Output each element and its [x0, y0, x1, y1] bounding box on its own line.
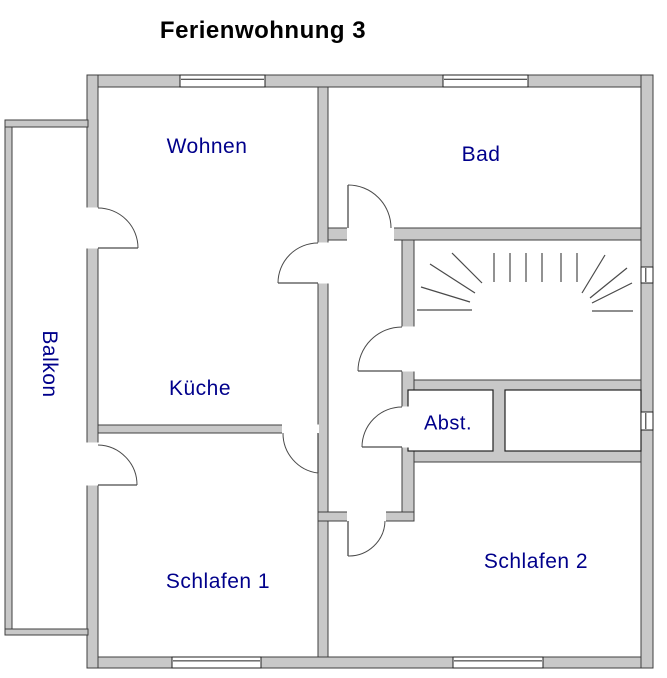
- page-title: Ferienwohnung 3: [160, 17, 366, 45]
- room-label-schlafen1: Schlafen 1: [166, 570, 270, 594]
- wall-outer-left: [87, 75, 98, 668]
- room-label-kueche: Küche: [169, 377, 231, 401]
- door-kueche-schlafen1-swing-arc: [283, 433, 318, 473]
- wall-balcony-top: [5, 120, 88, 127]
- room-label-schlafen2: Schlafen 2: [484, 550, 588, 574]
- wall-balcony-left: [5, 120, 12, 635]
- door-hall-bad-swing-arc: [348, 185, 391, 228]
- opening-kueche-to-schlafen1: [282, 425, 319, 434]
- window-wohnen-north: [180, 75, 265, 87]
- opening-hall-to-stairs: [401, 327, 415, 372]
- wall-balcony-bottom: [5, 629, 88, 635]
- window-schlafen1-south: [172, 657, 261, 668]
- door-hall-abst-swing-arc: [362, 407, 402, 447]
- door-wohnen-hall-swing-arc: [278, 243, 318, 283]
- window-stairs-east: [641, 267, 653, 283]
- stair-tread-line-13: [582, 255, 605, 293]
- opening-hall-to-abst: [401, 407, 415, 448]
- wall-outer-right: [641, 75, 653, 668]
- stair-tread-line-9: [452, 253, 482, 283]
- room-label-wohnen: Wohnen: [167, 135, 248, 159]
- opening-balcony-door-wohnen: [86, 208, 99, 249]
- stair-tread-line-8: [430, 264, 475, 293]
- door-hall-stairs-swing-arc: [358, 327, 402, 371]
- door-balcony-wohnen-swing-arc: [98, 208, 138, 248]
- door-hall-schlafen2-swing-arc: [348, 521, 385, 556]
- opening-hall-to-bad: [347, 228, 394, 241]
- room-label-abst: Abst.: [424, 413, 472, 436]
- floorplan-page: Ferienwohnung 3 Wohnen Bad Küche Balkon …: [0, 0, 667, 678]
- room-label-bad: Bad: [462, 143, 501, 167]
- stair-tread-line-7: [421, 287, 470, 302]
- closet-box: [505, 390, 641, 451]
- wall-hall-east: [402, 240, 414, 521]
- floorplan-drawing: [0, 0, 667, 678]
- window-schlafen2-south: [453, 657, 543, 668]
- window-closet-east: [641, 412, 653, 430]
- wall-spine-vertical: [318, 87, 328, 657]
- opening-wohnen-to-hall: [317, 243, 329, 284]
- window-bad-north: [443, 75, 528, 87]
- stair-tread-line-11: [592, 283, 632, 303]
- opening-hall-to-schlafen2: [347, 512, 386, 522]
- room-label-balkon: Balkon: [37, 330, 61, 397]
- wall-outer-top: [87, 75, 653, 87]
- opening-balcony-door-schlafen1: [86, 443, 99, 486]
- stair-tread-line-12: [590, 268, 627, 298]
- door-balcony-schlafen1-swing-arc: [98, 445, 137, 485]
